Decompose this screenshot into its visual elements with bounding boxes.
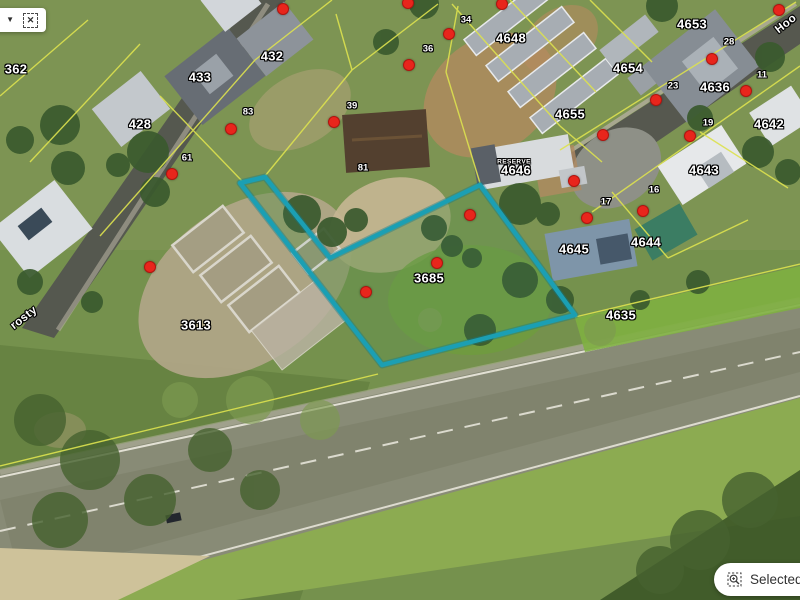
selected-features-label: Selected fe	[750, 572, 800, 587]
aerial-imagery	[0, 0, 800, 600]
collapse-caret-icon[interactable]: ▼	[6, 16, 14, 24]
clear-x-glyph: ✕	[27, 16, 35, 25]
map-canvas[interactable]: 3624334324284648465346544655463646424646…	[0, 0, 800, 600]
map-toolbar: ▼ ✕	[0, 8, 46, 32]
zoom-to-selection-icon	[727, 572, 742, 587]
selected-features-button[interactable]: Selected fe	[714, 563, 800, 596]
clear-selection-icon[interactable]: ✕	[23, 13, 38, 28]
